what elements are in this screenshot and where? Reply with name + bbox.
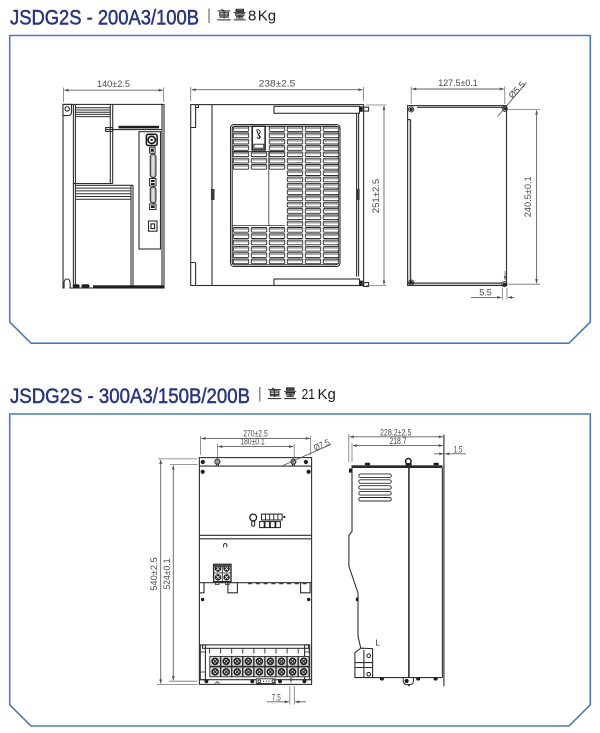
svg-text:8: 8 <box>248 8 256 25</box>
svg-text:5.5: 5.5 <box>479 287 492 297</box>
svg-text:140±2.5: 140±2.5 <box>97 79 130 89</box>
svg-text:238±2.5: 238±2.5 <box>259 79 296 89</box>
svg-text:218.7: 218.7 <box>390 436 407 446</box>
svg-text:JSDG2S - 200A3/100B: JSDG2S - 200A3/100B <box>10 6 199 30</box>
svg-text:251±2.5: 251±2.5 <box>371 179 381 214</box>
svg-text:21: 21 <box>302 386 316 403</box>
svg-text:180±0.1: 180±0.1 <box>240 437 265 447</box>
svg-text:7.5: 7.5 <box>272 692 281 702</box>
svg-text:240.5±0.1: 240.5±0.1 <box>523 176 533 217</box>
svg-text:540±2.5: 540±2.5 <box>149 557 159 591</box>
svg-text:127.5±0.1: 127.5±0.1 <box>438 78 478 88</box>
svg-text:Kg: Kg <box>258 8 276 25</box>
svg-text:L: L <box>376 639 381 648</box>
svg-text:1.5: 1.5 <box>454 444 463 454</box>
svg-text:Kg: Kg <box>318 386 336 403</box>
svg-text:JSDG2S - 300A3/150B/200B: JSDG2S - 300A3/150B/200B <box>10 384 250 408</box>
svg-text:524±0.1: 524±0.1 <box>162 559 172 590</box>
